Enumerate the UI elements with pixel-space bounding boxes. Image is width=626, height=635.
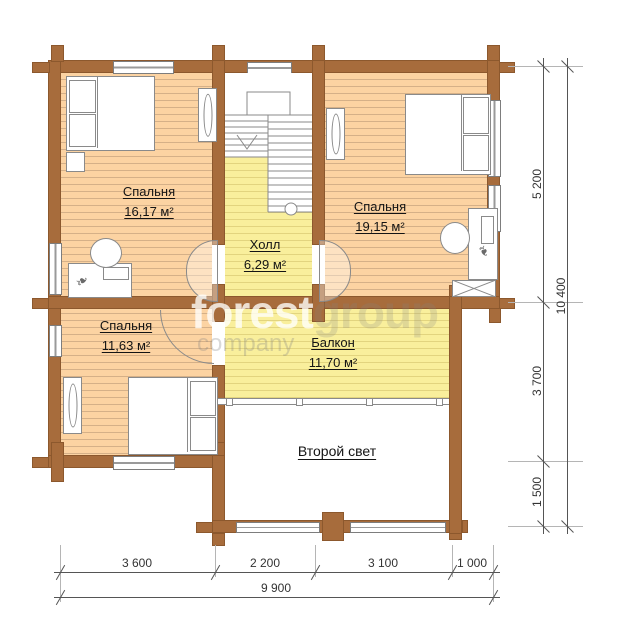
floor-plan-canvas: ❧ ❧ Спальня 16,17 м² Спальня 19,15 м² Сп… <box>0 0 626 635</box>
log-end <box>487 45 500 61</box>
radiator-lens <box>331 114 340 155</box>
window-left-bedroom1 <box>49 243 62 295</box>
pillow <box>69 80 96 113</box>
dim-label-3600: 3 600 <box>122 556 152 570</box>
computer <box>481 216 494 244</box>
pillow <box>463 135 489 171</box>
pillow <box>463 97 489 134</box>
window-bottom-bedroom3 <box>113 456 175 470</box>
chair-bedroom2 <box>440 222 470 254</box>
dim-line-bottom-total <box>54 597 500 598</box>
room-name: Балкон <box>281 333 385 353</box>
log-end <box>499 298 515 309</box>
dim-label-1500: 1 500 <box>530 477 544 507</box>
dim-label-3100: 3 100 <box>368 556 398 570</box>
log-end <box>462 520 468 533</box>
window-top-bedroom1 <box>113 61 174 74</box>
railing-post <box>366 398 373 406</box>
dim-label-10400: 10 400 <box>554 278 568 315</box>
window-bottom-right <box>350 522 446 533</box>
log-end <box>449 533 462 540</box>
railing-post <box>226 398 233 406</box>
log-end <box>196 522 213 533</box>
log-end <box>32 298 49 309</box>
bed-mattress-line <box>187 378 188 452</box>
room-name: Спальня <box>97 182 201 202</box>
nightstand <box>66 152 85 172</box>
log-end <box>212 533 225 546</box>
pillow <box>190 417 216 451</box>
wall-right-lower <box>449 296 462 537</box>
pillow <box>69 114 96 147</box>
room-name: Спальня <box>328 197 432 217</box>
window-bottom-left <box>236 522 320 533</box>
log-end <box>51 45 64 62</box>
room-label-bedroom-2: Спальня 19,15 м² <box>328 197 432 237</box>
radiator-lens <box>68 383 77 428</box>
room-area: 19,15 м² <box>328 217 432 237</box>
room-name: Спальня <box>74 316 178 336</box>
dim-label-2200: 2 200 <box>250 556 280 570</box>
log-end <box>51 442 64 482</box>
wall-stair-right <box>312 60 325 245</box>
dim-label-1000: 1 000 <box>457 556 487 570</box>
room-name: Холл <box>213 235 317 255</box>
dim-label-5200: 5 200 <box>530 169 544 199</box>
room-label-balcony: Балкон 11,70 м² <box>281 333 385 373</box>
log-end <box>499 62 515 73</box>
dim-line-bottom-segments <box>54 572 500 573</box>
balcony-railing <box>218 398 449 405</box>
railing-post <box>436 398 443 406</box>
staircase <box>225 73 312 219</box>
dim-label-3700: 3 700 <box>530 366 544 396</box>
log-end <box>212 45 225 61</box>
room-area: 11,63 м² <box>74 336 178 356</box>
bed-mattress-line <box>97 77 98 148</box>
pillow <box>190 381 216 416</box>
room-area: 11,70 м² <box>281 353 385 373</box>
dim-label-9900: 9 900 <box>261 581 291 595</box>
computer <box>103 267 129 280</box>
log-end <box>312 45 325 61</box>
log-end <box>489 308 501 323</box>
room-label-bedroom-3: Спальня 11,63 м² <box>74 316 178 356</box>
radiator-bedroom2 <box>326 108 345 160</box>
room-area: 16,17 м² <box>97 202 201 222</box>
radiator-lens <box>203 94 212 137</box>
room-area: 6,29 м² <box>213 255 317 275</box>
room-label-bedroom-1: Спальня 16,17 м² <box>97 182 201 222</box>
bed-mattress-line <box>461 95 462 171</box>
room-label-hall: Холл 6,29 м² <box>213 235 317 275</box>
log-end <box>32 62 50 73</box>
wardrobe-x <box>452 280 496 297</box>
chair-bedroom1 <box>90 238 122 268</box>
second-light-label: Второй свет <box>237 443 437 459</box>
radiator-bedroom1 <box>198 88 217 142</box>
railing-post <box>296 398 303 406</box>
window-left-bedroom3 <box>49 325 62 357</box>
radiator-bedroom3 <box>63 377 82 434</box>
log-end <box>32 457 49 468</box>
log-post-bottom-center <box>322 512 344 541</box>
